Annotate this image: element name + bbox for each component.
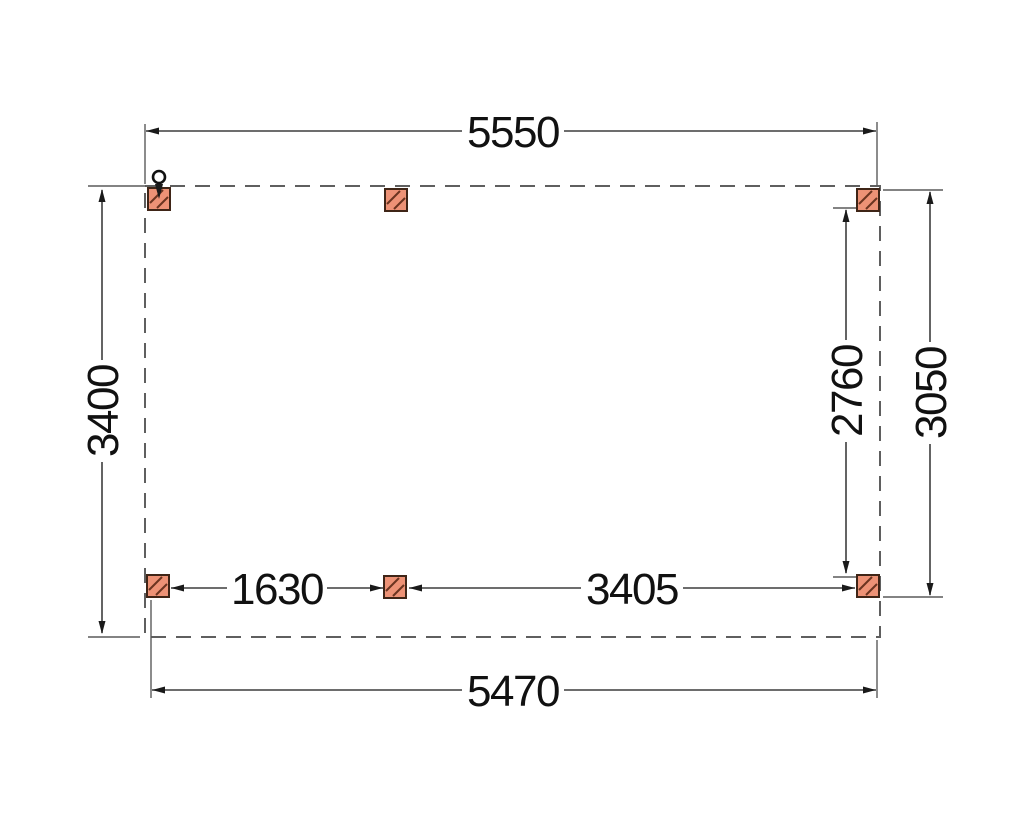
dim-bottom-width: 5470	[151, 600, 877, 716]
arrowhead-right-icon	[863, 687, 876, 694]
arrowhead-right-icon	[842, 585, 855, 592]
drawing-svg: 5550 3400 2760 3050 1630	[0, 0, 1024, 819]
dim-bottom-right-bay-label: 3405	[586, 565, 678, 614]
dim-right-height: 3050	[883, 190, 956, 597]
arrowhead-down-icon	[927, 583, 934, 596]
dim-right-post-span-label: 2760	[823, 345, 872, 437]
post-bottom-middle	[384, 576, 406, 598]
dim-right-post-span: 2760	[823, 208, 872, 577]
post-top-middle	[385, 189, 407, 211]
downpipe-circle-icon	[153, 171, 165, 183]
dim-left-height: 3400	[79, 186, 146, 637]
post-top-right	[857, 189, 879, 211]
post-bottom-left	[147, 575, 169, 597]
dim-bottom-width-label: 5470	[467, 667, 559, 716]
arrowhead-left-icon	[171, 585, 184, 592]
dim-bottom-right-bay: 3405	[409, 565, 855, 614]
dim-bottom-left-bay-label: 1630	[231, 565, 323, 614]
arrowhead-left-icon	[146, 128, 159, 135]
arrowhead-left-icon	[409, 585, 422, 592]
arrowhead-up-icon	[843, 209, 850, 222]
arrowhead-right-icon	[863, 128, 876, 135]
dim-top-width: 5550	[145, 108, 877, 186]
dim-bottom-left-bay: 1630	[171, 565, 383, 614]
dim-left-height-label: 3400	[79, 365, 128, 457]
arrowhead-right-icon	[370, 585, 383, 592]
posts	[147, 188, 879, 598]
arrowhead-left-icon	[152, 687, 165, 694]
post-bottom-right	[857, 575, 879, 597]
arrowhead-up-icon	[99, 189, 106, 202]
arrowhead-down-icon	[99, 621, 106, 634]
dim-right-height-label: 3050	[907, 347, 956, 439]
dim-top-width-label: 5550	[467, 108, 559, 157]
arrowhead-down-icon	[843, 561, 850, 574]
floorplan-drawing: 5550 3400 2760 3050 1630	[0, 0, 1024, 819]
arrowhead-up-icon	[927, 191, 934, 204]
